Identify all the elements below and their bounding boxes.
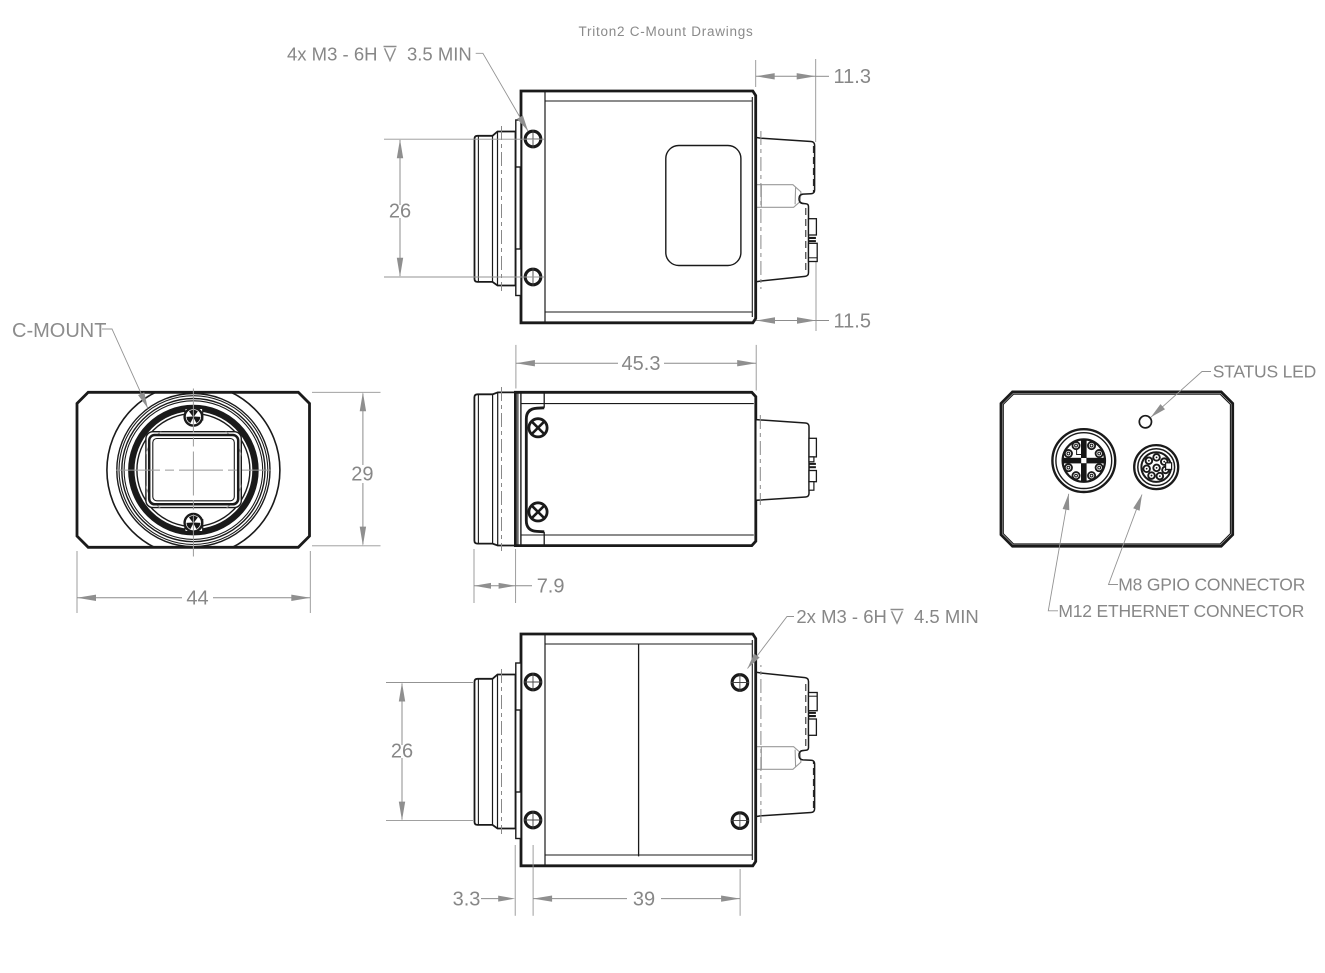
svg-text:11.3: 11.3 xyxy=(834,66,871,88)
svg-text:C-MOUNT: C-MOUNT xyxy=(12,320,106,342)
svg-text:7.9: 7.9 xyxy=(537,576,565,598)
svg-text:26: 26 xyxy=(391,741,413,763)
svg-text:45.3: 45.3 xyxy=(622,353,661,375)
svg-text:Triton2 C-Mount Drawings: Triton2 C-Mount Drawings xyxy=(578,24,753,39)
svg-text:39: 39 xyxy=(633,888,655,910)
svg-text:4.5 MIN: 4.5 MIN xyxy=(914,606,979,627)
svg-text:2x M3 - 6H: 2x M3 - 6H xyxy=(796,606,886,627)
svg-text:11.5: 11.5 xyxy=(834,310,871,332)
svg-text:3.3: 3.3 xyxy=(453,888,481,910)
svg-text:M12 ETHERNET CONNECTOR: M12 ETHERNET CONNECTOR xyxy=(1058,601,1304,621)
svg-text:M8 GPIO CONNECTOR: M8 GPIO CONNECTOR xyxy=(1118,575,1305,595)
svg-text:44: 44 xyxy=(186,588,208,610)
svg-text:STATUS LED: STATUS LED xyxy=(1213,362,1316,382)
svg-text:29: 29 xyxy=(351,464,373,486)
svg-text:3.5 MIN: 3.5 MIN xyxy=(407,44,472,65)
svg-text:4x M3 - 6H: 4x M3 - 6H xyxy=(287,44,377,65)
svg-text:26: 26 xyxy=(389,201,411,223)
